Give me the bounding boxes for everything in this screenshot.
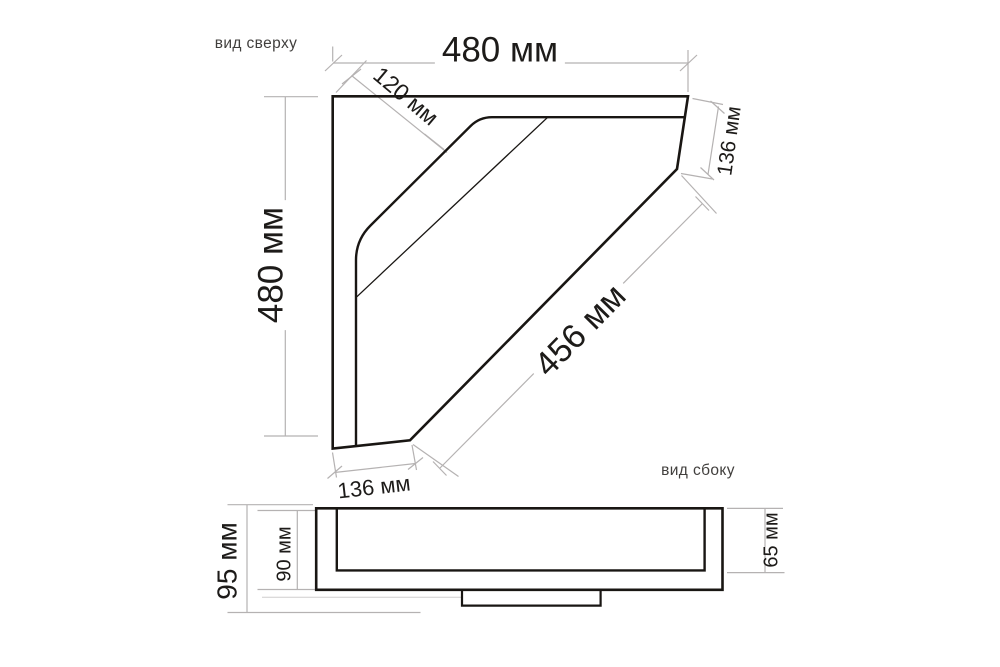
dim-text-depth-left: 480 мм xyxy=(253,200,292,330)
side-view-drawing xyxy=(316,508,722,605)
top-view-label: вид сверху xyxy=(215,36,298,52)
side-body-outline xyxy=(316,508,722,590)
dim-text-total-height: 95 мм xyxy=(212,522,241,599)
side-view-dimension-lines xyxy=(228,505,785,613)
dim-text-top-width: 480 мм xyxy=(435,32,565,71)
dim-witness xyxy=(693,99,724,105)
side-view-label: вид сбоку xyxy=(661,463,735,479)
dim-tick xyxy=(342,69,361,84)
linework xyxy=(0,0,1000,667)
side-recess-contour xyxy=(337,508,705,570)
dim-text-body-height: 90 мм xyxy=(275,526,296,581)
dim-text-front-height: 65 мм xyxy=(762,512,783,567)
drawing-canvas: вид сверху вид сбоку 480 мм 120 мм 136 м… xyxy=(0,0,1000,667)
dim-tick xyxy=(425,134,445,150)
basin-contour xyxy=(356,117,685,446)
side-mount-tab xyxy=(462,590,601,606)
